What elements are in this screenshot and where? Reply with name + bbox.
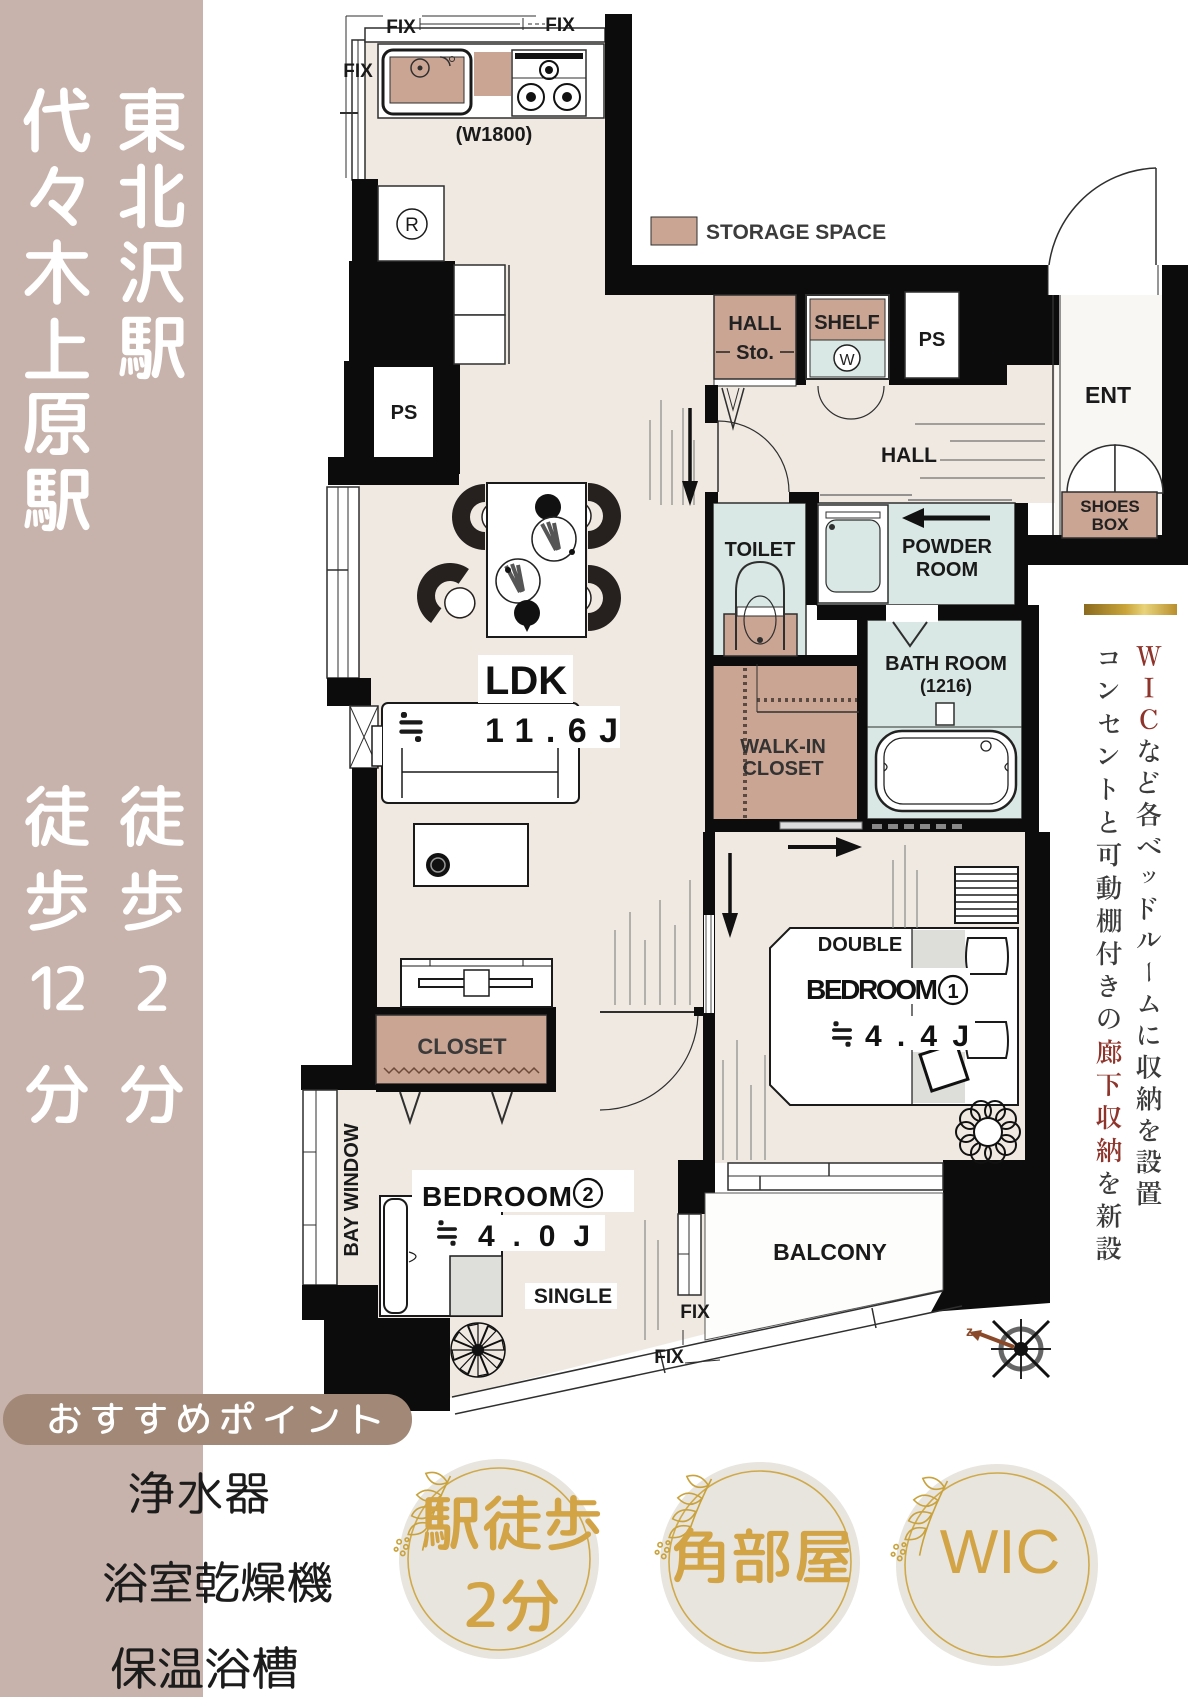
svg-text:FIX: FIX [654, 1347, 684, 1368]
svg-text:HALL: HALL [728, 313, 781, 335]
svg-text:STORAGE SPACE: STORAGE SPACE [706, 221, 886, 244]
svg-text:FIX: FIX [343, 61, 373, 82]
svg-text:CLOSET: CLOSET [417, 1034, 507, 1059]
svg-text:DOUBLE: DOUBLE [818, 934, 902, 956]
svg-text:1: 1 [947, 981, 958, 1003]
svg-text:TOILET: TOILET [725, 539, 796, 561]
svg-text:Sto.: Sto. [736, 342, 774, 364]
svg-text:FIX: FIX [386, 17, 416, 38]
svg-text:PS: PS [919, 329, 946, 351]
svg-text:BAY WINDOW: BAY WINDOW [341, 1123, 363, 1256]
svg-text:SHELF: SHELF [814, 312, 880, 334]
svg-text:R: R [405, 215, 419, 236]
svg-text:HALL: HALL [881, 444, 937, 467]
svg-text:BOX: BOX [1092, 515, 1130, 534]
svg-text:ROOM: ROOM [916, 559, 978, 581]
svg-text:WIC: WIC [940, 1518, 1061, 1587]
svg-text:(1216): (1216) [920, 676, 972, 696]
svg-text:BEDROOM: BEDROOM [422, 1181, 572, 1212]
svg-text:SHOES: SHOES [1080, 497, 1140, 516]
svg-text:2: 2 [582, 1184, 593, 1206]
svg-text:z: z [966, 1323, 973, 1339]
svg-text:FIX: FIX [545, 15, 575, 36]
svg-text:BATH ROOM: BATH ROOM [885, 653, 1007, 675]
svg-text:SINGLE: SINGLE [534, 1285, 612, 1308]
svg-text:FIX: FIX [680, 1302, 710, 1323]
svg-text:PS: PS [391, 402, 418, 424]
svg-text:(W1800): (W1800) [456, 124, 533, 146]
svg-text:ENT: ENT [1085, 382, 1131, 408]
svg-text:CLOSET: CLOSET [742, 758, 823, 780]
svg-text:LDK: LDK [485, 659, 567, 703]
svg-text:WALK-IN: WALK-IN [740, 736, 826, 758]
svg-text:W: W [839, 352, 855, 369]
svg-text:BALCONY: BALCONY [773, 1239, 887, 1265]
svg-text:BEDROOM: BEDROOM [806, 974, 938, 1005]
svg-text:POWDER: POWDER [902, 536, 993, 558]
